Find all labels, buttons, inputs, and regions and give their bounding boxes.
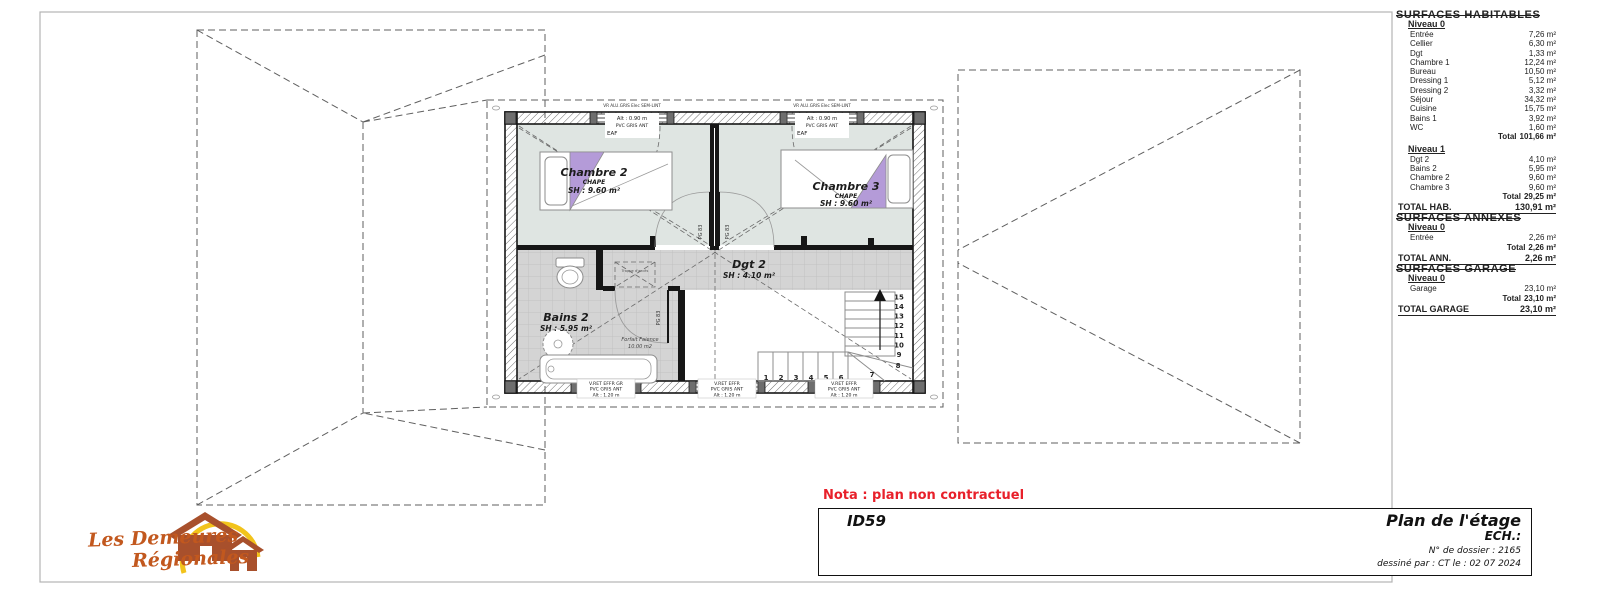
level-total-row: Total2,26 m² (1396, 243, 1556, 253)
surface-row: Entrée7,26 m² (1410, 30, 1556, 39)
surface-value: 1,33 m² (1529, 49, 1556, 58)
svg-text:SH : 4.10 m²: SH : 4.10 m² (723, 271, 776, 280)
svg-text:PVC GRIS ANT: PVC GRIS ANT (590, 387, 623, 393)
surface-value: 12,24 m² (1524, 58, 1556, 67)
svg-text:Alt : 0.90 m: Alt : 0.90 m (807, 116, 837, 122)
svg-text:VR ALU.GRIS Elec SEM-LINT: VR ALU.GRIS Elec SEM-LINT (603, 103, 661, 108)
stair-step-number: 9 (897, 351, 902, 359)
surface-value: 23,10 m² (1524, 284, 1556, 293)
svg-text:Alt : 1.20 m: Alt : 1.20 m (714, 393, 741, 399)
surface-row: Dgt 24,10 m² (1410, 155, 1556, 164)
svg-text:Alt : 1.20 m: Alt : 1.20 m (831, 393, 858, 399)
surface-name: Dressing 1 (1410, 76, 1448, 85)
surface-name: Entrée (1410, 30, 1434, 39)
surface-value: 5,12 m² (1529, 76, 1556, 85)
svg-text:CHAPE: CHAPE (583, 179, 606, 186)
title-block: ID59 Plan de l'étage ECH.: N° de dossier… (818, 508, 1532, 576)
surface-value: 2,26 m² (1529, 233, 1556, 242)
stair-step-number: 8 (896, 362, 901, 370)
drawing-title: Plan de l'étage (1386, 511, 1521, 530)
section-grand-total: TOTAL GARAGE23,10 m² (1398, 304, 1556, 316)
surface-name: Bains 1 (1410, 114, 1437, 123)
surface-value: 34,32 m² (1524, 95, 1556, 104)
level-total-row: Total23,10 m² (1396, 294, 1556, 304)
surface-name: Bains 2 (1410, 164, 1437, 173)
dossier-number: N° de dossier : 2165 (1429, 546, 1521, 556)
surface-row: Dgt1,33 m² (1410, 49, 1556, 58)
logo-text-line2: Régionales (132, 546, 250, 572)
surface-name: Cellier (1410, 39, 1433, 48)
svg-text:PVC GRIS ANT: PVC GRIS ANT (711, 387, 744, 393)
room-label-chambre3: Chambre 3 (812, 180, 879, 193)
section-title-wrap: SURFACES GARAGE (1396, 267, 1562, 271)
right-roof-outline (958, 70, 1300, 443)
svg-text:Trappe d'accès: Trappe d'accès (621, 269, 649, 273)
surface-name: Bureau (1410, 67, 1436, 76)
section-title-wrap: SURFACES HABITABLES (1396, 13, 1562, 17)
surface-value: 10,50 m² (1524, 67, 1556, 76)
faience-note: Forfait Faience (621, 337, 658, 343)
surface-name: Dgt (1410, 49, 1422, 58)
surface-row: Cellier6,30 m² (1410, 39, 1556, 48)
surfaces-panel: SURFACES HABITABLESNiveau 0Entrée7,26 m²… (1396, 13, 1562, 318)
surface-value: 9,60 m² (1529, 173, 1556, 182)
drawn-by: dessiné par : CT le : 02 07 2024 (1377, 559, 1521, 569)
stair-step-number: 10 (894, 341, 904, 349)
surface-row: Chambre 29,60 m² (1410, 173, 1556, 182)
stair-step-number: 1 (764, 374, 769, 382)
stair-step-number: 14 (894, 303, 904, 311)
stair-step-number: 15 (894, 293, 904, 301)
surface-value: 1,60 m² (1529, 123, 1556, 132)
surface-row: Cuisine15,75 m² (1410, 104, 1556, 113)
company-logo: Les Demeures Régionales (80, 505, 280, 583)
surface-value: 15,75 m² (1524, 104, 1556, 113)
svg-text:Alt : 0.90 m: Alt : 0.90 m (617, 116, 647, 122)
svg-text:Alt : 1.20 m: Alt : 1.20 m (593, 393, 620, 399)
level-total-row: Total29,25 m² (1396, 192, 1556, 202)
svg-text:SH : 9.60 m²: SH : 9.60 m² (568, 186, 621, 195)
level-title: Niveau 1 (1408, 144, 1562, 154)
left-roof-outline (197, 30, 545, 505)
stair-step-number: 11 (894, 332, 904, 340)
drawing-scale: ECH.: (1485, 529, 1521, 543)
stair-step-number: 13 (894, 313, 904, 321)
stair-step-number: 2 (779, 374, 784, 382)
svg-text:SH : 9.60 m²: SH : 9.60 m² (820, 199, 873, 208)
surface-name: Dressing 2 (1410, 86, 1448, 95)
surface-row: Bureau10,50 m² (1410, 67, 1556, 76)
svg-text:EAF: EAF (607, 131, 617, 137)
surface-value: 7,26 m² (1529, 30, 1556, 39)
surface-row: Dressing 23,32 m² (1410, 86, 1556, 95)
section-title: SURFACES ANNEXES (1396, 218, 1521, 219)
bed-chambre2 (540, 152, 672, 210)
section-title: SURFACES GARAGE (1396, 269, 1516, 270)
room-label-dgt2: Dgt 2 (732, 258, 766, 271)
surface-row: Entrée2,26 m² (1410, 233, 1556, 242)
svg-text:PVC GRIS ANT: PVC GRIS ANT (806, 123, 839, 129)
plan-sheet: { "colors":{"nota_red":"#e8202a","logo_t… (0, 0, 1600, 600)
surface-value: 5,95 m² (1529, 164, 1556, 173)
surface-name: Garage (1410, 284, 1437, 293)
surface-name: Chambre 3 (1410, 183, 1450, 192)
room-label-bains2: Bains 2 (543, 311, 589, 324)
section-title-wrap: SURFACES ANNEXES (1396, 216, 1562, 220)
door-size-label: PG 83 (698, 225, 704, 240)
svg-text:SH : 5.95 m²: SH : 5.95 m² (540, 324, 593, 333)
nota-text: Nota : plan non contractuel (823, 488, 1024, 503)
svg-text:EAF: EAF (797, 131, 807, 137)
stair-step-number: 3 (794, 374, 799, 382)
room-label-chambre2: Chambre 2 (560, 166, 627, 179)
surface-row: Chambre 112,24 m² (1410, 58, 1556, 67)
surface-name: Entrée (1410, 233, 1434, 242)
svg-text:V.RET EFFR GR: V.RET EFFR GR (589, 381, 624, 387)
stair-step-number: 4 (809, 374, 814, 382)
surface-value: 3,92 m² (1529, 114, 1556, 123)
svg-text:VR ALU.GRIS Elec SEM-LINT: VR ALU.GRIS Elec SEM-LINT (793, 103, 851, 108)
surface-row: Dressing 15,12 m² (1410, 76, 1556, 85)
door-size-label: PG 83 (656, 311, 662, 326)
surface-value: 3,32 m² (1529, 86, 1556, 95)
surface-row: Bains 13,92 m² (1410, 114, 1556, 123)
section-title: SURFACES HABITABLES (1396, 15, 1540, 16)
drawing-id: ID59 (847, 512, 886, 530)
svg-text:PVC GRIS ANT: PVC GRIS ANT (616, 123, 649, 129)
surface-value: 6,30 m² (1529, 39, 1556, 48)
toilet (556, 258, 584, 288)
svg-text:V.RET EFFR: V.RET EFFR (831, 381, 858, 387)
level-total-row: Total101,66 m² (1396, 132, 1556, 142)
surface-name: Dgt 2 (1410, 155, 1429, 164)
svg-text:V.RET EFFR: V.RET EFFR (714, 381, 741, 387)
surface-row: Chambre 39,60 m² (1410, 183, 1556, 192)
surface-name: Séjour (1410, 95, 1433, 104)
surface-name: WC (1410, 123, 1423, 132)
svg-text:10.00 m2: 10.00 m2 (628, 344, 652, 350)
surface-row: Bains 25,95 m² (1410, 164, 1556, 173)
surface-name: Cuisine (1410, 104, 1437, 113)
surface-value: 4,10 m² (1529, 155, 1556, 164)
stair-step-number: 7 (870, 371, 875, 379)
surface-value: 9,60 m² (1529, 183, 1556, 192)
door-size-label: PG 83 (725, 225, 731, 240)
svg-text:PVC GRIS ANT: PVC GRIS ANT (828, 387, 861, 393)
surface-row: Garage23,10 m² (1410, 284, 1556, 293)
surface-row: WC1,60 m² (1410, 123, 1556, 132)
surface-name: Chambre 2 (1410, 173, 1450, 182)
surface-name: Chambre 1 (1410, 58, 1450, 67)
surface-row: Séjour34,32 m² (1410, 95, 1556, 104)
stair-step-number: 12 (894, 322, 904, 330)
